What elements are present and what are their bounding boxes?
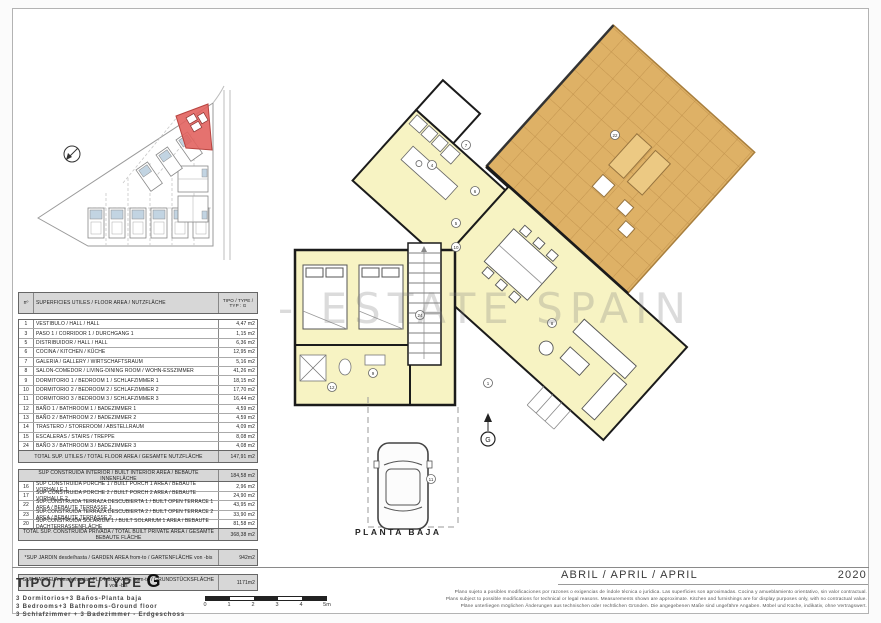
type-g-marker: G — [481, 413, 495, 446]
row-number: 11 — [19, 395, 34, 403]
row-area-value: 4,59 m2 — [218, 414, 257, 422]
row-number: 16 — [19, 482, 34, 490]
total-floor-row: TOTAL SUP. UTILES / TOTAL FLOOR AREA / G… — [18, 450, 258, 463]
type-title-text: TIPO/TYPE/TYPE — [16, 575, 142, 590]
header-label: SUPERFICIES UTILES / FLOOR AREA / NUTZFL… — [34, 293, 218, 313]
table-row: 8SALON-COMEDOR / LIVING-DINING ROOM / WO… — [19, 367, 257, 376]
row-area-value: 8,08 m2 — [218, 433, 257, 441]
row-area-value: 17,70 m2 — [218, 386, 257, 394]
disclaimer: Plano sujeto a posibles modificaciones p… — [370, 589, 867, 609]
disclaimer-en: Plans subject to possible modifications … — [370, 596, 867, 603]
row-area-value: 41,26 m2 — [218, 367, 257, 375]
title-block: TIPO/TYPE/TYPEG 3 Dormitorios+3 Baños-Pl… — [16, 571, 185, 619]
row-number: 9 — [19, 376, 34, 384]
disclaimer-de: Pläne unterliegen möglichen Änderungen a… — [370, 603, 867, 610]
row-number: 15 — [19, 433, 34, 441]
scale-tick-4: 4 — [299, 602, 302, 608]
scale-tick-3: 3 — [275, 602, 278, 608]
table-row: 12BAÑO 1 / BATHROOM 1 / BADEZIMMER 14,59… — [19, 405, 257, 414]
subtitle-en: 3 Bedrooms+3 Bathrooms-Ground floor — [16, 603, 185, 611]
row-label: BAÑO 1 / BATHROOM 1 / BADEZIMMER 1 — [34, 405, 218, 413]
table-row: 5DISTRIBUIDOR / HALL / HALL6,36 m2 — [19, 339, 257, 348]
plot-value: 1171m2 — [218, 575, 257, 590]
svg-text:10: 10 — [453, 245, 459, 250]
area-table-header: nº SUPERFICIES UTILES / FLOOR AREA / NUT… — [18, 292, 258, 314]
row-number: 17 — [19, 492, 34, 500]
row-label: ESCALERAS / STAIRS / TREPPE — [34, 433, 218, 441]
row-label: BAÑO 3 / BATHROOM 3 / BADEZIMMER 3 — [34, 442, 218, 450]
scale-bar: 0 1 2 3 4 5m — [205, 596, 335, 610]
table-row: 7GALERIA / GALLERY / WIRTSCHAFTSRAUM5,16… — [19, 358, 257, 367]
subtitle-de: 3 Schlafzimmer + 3 Badezimmer - Erdgesch… — [16, 611, 185, 619]
scale-tick-1: 1 — [227, 602, 230, 608]
row-number: 20 — [19, 520, 34, 528]
table-row: 15ESCALERAS / STAIRS / TREPPE8,08 m2 — [19, 433, 257, 442]
car — [374, 443, 432, 529]
table-row: 13BAÑO 2 / BATHROOM 2 / BADEZIMMER 24,59… — [19, 414, 257, 423]
watermark: - ESTATE SPAIN — [278, 284, 693, 333]
row-label: DORMITORIO 1 / BEDROOM 1 / SCHLAFZIMMER … — [34, 376, 218, 384]
row-number: 8 — [19, 367, 34, 375]
table-row: 14TRASTERO / STOREROOM / ABSTELLRAUM4,09… — [19, 423, 257, 432]
row-number: 7 — [19, 358, 34, 366]
total-built-value: 368,38 m2 — [218, 529, 257, 540]
total-built-row: TOTAL SUP. CONSTRUIDA PRIVADA / TOTAL BU… — [18, 528, 258, 541]
plan-label: PLANTA BAJA — [355, 527, 442, 537]
row-label: DORMITORIO 3 / BEDROOM 3 / SCHLAFZIMMER … — [34, 395, 218, 403]
row-number: 10 — [19, 386, 34, 394]
built-interior-value: 184,58 m2 — [218, 470, 257, 481]
total-floor-value: 147,91 m2 — [218, 451, 257, 462]
row-label: GALERIA / GALLERY / WIRTSCHAFTSRAUM — [34, 358, 218, 366]
row-label: PASO 1 / CORRIDOR 1 / DURCHGANG 1 — [34, 329, 218, 337]
type-letter: G — [146, 571, 162, 591]
row-number: 14 — [19, 423, 34, 431]
row-area-value: 2,96 m2 — [218, 482, 257, 490]
row-area-value: 4,59 m2 — [218, 405, 257, 413]
site-plan — [28, 58, 258, 268]
table-row: 1VESTIBULO / HALL / HALL4,47 m2 — [19, 320, 257, 329]
scale-tick-2: 2 — [251, 602, 254, 608]
row-area-value: 18,15 m2 — [218, 376, 257, 384]
row-area-value: 4,09 m2 — [218, 423, 257, 431]
row-number: 12 — [19, 405, 34, 413]
svg-text:12: 12 — [329, 385, 335, 390]
g-marker-letter: G — [485, 437, 490, 444]
table-row: 6COCINA / KITCHEN / KÜCHE12,95 m2 — [19, 348, 257, 357]
row-label: VESTIBULO / HALL / HALL — [34, 320, 218, 328]
row-label: SALON-COMEDOR / LIVING-DINING ROOM / WOH… — [34, 367, 218, 375]
row-area-value: 5,16 m2 — [218, 358, 257, 366]
row-area-value: 81,58 m2 — [218, 520, 257, 528]
table-row: 10DORMITORIO 2 / BEDROOM 2 / SCHLAFZIMME… — [19, 386, 257, 395]
row-label: DORMITORIO 2 / BEDROOM 2 / SCHLAFZIMMER … — [34, 386, 218, 394]
garden-value: 942m2 — [218, 550, 257, 565]
date-row: ABRIL / APRIL / APRIL 2020 — [561, 569, 867, 581]
row-number: 23 — [19, 511, 34, 519]
date-year: 2020 — [838, 569, 867, 581]
total-floor-label: TOTAL SUP. UTILES / TOTAL FLOOR AREA / G… — [19, 451, 218, 462]
type-title: TIPO/TYPE/TYPEG — [16, 571, 185, 592]
scale-tick-0: 0 — [203, 602, 206, 608]
subtitle-es: 3 Dormitorios+3 Baños-Planta baja — [16, 595, 185, 603]
row-number: 5 — [19, 339, 34, 347]
row-number: 6 — [19, 348, 34, 356]
header-type-line2: TYP : G — [230, 303, 247, 308]
north-arrow-icon — [64, 146, 80, 162]
table-row: 9DORMITORIO 1 / BEDROOM 1 / SCHLAFZIMMER… — [19, 376, 257, 385]
row-label: TRASTERO / STOREROOM / ABSTELLRAUM — [34, 423, 218, 431]
total-built-label: TOTAL SUP. CONSTRUIDA PRIVADA / TOTAL BU… — [19, 529, 218, 540]
row-area-value: 4,08 m2 — [218, 442, 257, 450]
date-underline — [558, 584, 868, 585]
row-area-value: 16,44 m2 — [218, 395, 257, 403]
table-row: 24BAÑO 3 / BATHROOM 3 / BADEZIMMER 34,08… — [19, 442, 257, 450]
row-label: COCINA / KITCHEN / KÜCHE — [34, 348, 218, 356]
row-area-value: 1,15 m2 — [218, 329, 257, 337]
garden-row: *SUP JARDIN desde/hasta / GARDEN AREA fr… — [18, 549, 258, 566]
row-label: DISTRIBUIDOR / HALL / HALL — [34, 339, 218, 347]
row-label: BAÑO 2 / BATHROOM 2 / BADEZIMMER 2 — [34, 414, 218, 422]
table-row: 11DORMITORIO 3 / BEDROOM 3 / SCHLAFZIMME… — [19, 395, 257, 404]
row-area-value: 24,90 m2 — [218, 492, 257, 500]
site-road — [213, 86, 230, 260]
row-area-value: 4,47 m2 — [218, 320, 257, 328]
row-number: 13 — [19, 414, 34, 422]
row-number: 3 — [19, 329, 34, 337]
table-row: 3PASO 1 / CORRIDOR 1 / DURCHGANG 11,15 m… — [19, 329, 257, 338]
svg-text:11: 11 — [429, 477, 434, 482]
svg-text:22: 22 — [612, 133, 618, 138]
header-num: nº — [19, 293, 34, 313]
row-label: SUP.CONSTRUIDA SOLARIUM 1 / BUILT SOLARI… — [34, 520, 218, 528]
row-area-value: 6,36 m2 — [218, 339, 257, 347]
row-number: 22 — [19, 501, 34, 509]
area-table: nº SUPERFICIES UTILES / FLOOR AREA / NUT… — [18, 292, 258, 591]
row-area-value: 43,95 m2 — [218, 501, 257, 509]
footer-divider — [12, 567, 869, 568]
scale-tick-5: 5m — [323, 602, 331, 608]
garden-label: *SUP JARDIN desde/hasta / GARDEN AREA fr… — [19, 550, 218, 565]
row-number: 1 — [19, 320, 34, 328]
disclaimer-es: Plano sujeto a posibles modificaciones p… — [370, 589, 867, 596]
built-rows: 16SUP CONSTRUIDA PORCHE 1 / BUILT PORCH … — [18, 481, 258, 529]
room-rows: 1VESTIBULO / HALL / HALL4,47 m23PASO 1 /… — [18, 319, 258, 451]
row-area-value: 33,90 m2 — [218, 511, 257, 519]
header-type: TIPO / TYPE / TYP : G — [218, 293, 257, 313]
date-label: ABRIL / APRIL / APRIL — [561, 569, 698, 581]
row-area-value: 12,95 m2 — [218, 348, 257, 356]
table-row: 20SUP.CONSTRUIDA SOLARIUM 1 / BUILT SOLA… — [19, 520, 257, 528]
row-number: 24 — [19, 442, 34, 450]
